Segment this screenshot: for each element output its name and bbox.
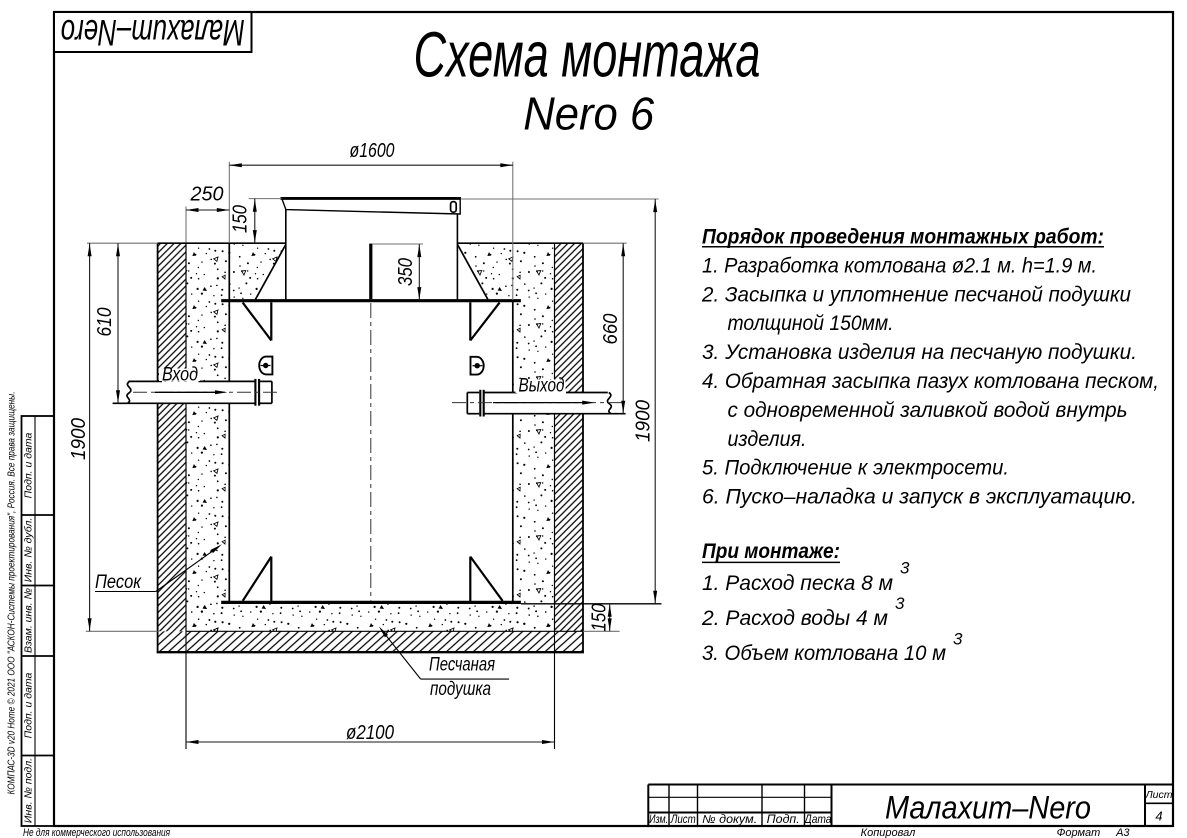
svg-text:6. Пуско–наладка и запуск в эк: 6. Пуско–наладка и запуск в эксплуатацию… <box>702 486 1137 509</box>
svg-text:4. Обратная засыпка пазух котл: 4. Обратная засыпка пазух котлована песк… <box>702 370 1159 393</box>
svg-text:Не для коммерческого использов: Не для коммерческого использования <box>23 827 170 838</box>
svg-text:ø2100: ø2100 <box>346 721 394 744</box>
svg-text:Лист: Лист <box>1144 789 1172 801</box>
svg-text:3: 3 <box>953 630 963 649</box>
svg-text:610: 610 <box>93 307 116 336</box>
svg-text:350: 350 <box>394 258 417 286</box>
svg-text:Схема монтажа: Схема монтажа <box>414 19 761 91</box>
svg-text:660: 660 <box>599 313 622 345</box>
svg-text:3. Установка изделия на песчан: 3. Установка изделия на песчаную подушки… <box>702 341 1137 364</box>
svg-text:3: 3 <box>900 559 910 578</box>
svg-text:подушка: подушка <box>430 678 491 700</box>
svg-text:ø1600: ø1600 <box>350 139 395 162</box>
svg-text:Песчаная: Песчаная <box>429 653 495 675</box>
svg-text:Nero 6: Nero 6 <box>523 88 654 140</box>
svg-text:4: 4 <box>1155 809 1162 824</box>
svg-text:Инв. № дубл.: Инв. № дубл. <box>23 518 35 583</box>
svg-text:2. Расход воды 4 м: 2. Расход воды 4 м <box>701 607 888 630</box>
svg-text:Подп.: Подп. <box>767 814 800 826</box>
svg-text:изделия.: изделия. <box>728 428 807 451</box>
svg-text:Порядок проведения монтажных р: Порядок проведения монтажных работ: <box>702 225 1104 248</box>
svg-text:Малахит–Nero: Малахит–Nero <box>885 790 1091 826</box>
svg-text:1. Разработка котлована ø2.1 м: 1. Разработка котлована ø2.1 м. h=1.9 м. <box>702 255 1097 278</box>
svg-text:Формат: Формат <box>1057 827 1101 838</box>
svg-text:При монтаже:: При монтаже: <box>702 540 840 563</box>
svg-text:Подп. и дата: Подп. и дата <box>23 672 35 738</box>
svg-text:Дата: Дата <box>803 814 832 826</box>
svg-text:с одновременной заливкой водой: с одновременной заливкой водой внутрь <box>728 399 1128 422</box>
svg-text:250: 250 <box>190 183 225 206</box>
svg-text:толщиной 150мм.: толщиной 150мм. <box>728 312 894 335</box>
svg-text:Взам. инв. №: Взам. инв. № <box>23 588 35 653</box>
svg-text:Песок: Песок <box>95 571 142 593</box>
svg-text:3. Объем котлована 10 м: 3. Объем котлована 10 м <box>702 642 946 665</box>
svg-text:Выход: Выход <box>519 375 565 396</box>
svg-text:5. Подключение к электросети.: 5. Подключение к электросети. <box>702 457 1009 480</box>
svg-text:150: 150 <box>588 603 611 631</box>
svg-text:1900: 1900 <box>632 399 655 442</box>
svg-text:Изм.: Изм. <box>649 814 668 826</box>
svg-text:150: 150 <box>229 205 252 233</box>
svg-text:КОМПАС-3D v20 Home © 2021 ООО: КОМПАС-3D v20 Home © 2021 ООО "АСКОН-Сис… <box>7 392 18 795</box>
svg-text:Малахит–Nero: Малахит–Nero <box>61 12 245 53</box>
svg-text:Лист: Лист <box>670 814 696 826</box>
svg-text:1. Расход песка 8 м: 1. Расход песка 8 м <box>702 572 893 595</box>
svg-text:Вход: Вход <box>162 364 198 385</box>
svg-text:Инв. № подл.: Инв. № подл. <box>23 758 35 823</box>
svg-text:2. Засыпка и уплотнение песчан: 2. Засыпка и уплотнение песчаной подушки <box>701 283 1131 306</box>
svg-text:Подп. и дата: Подп. и дата <box>23 432 35 498</box>
svg-text:3: 3 <box>895 594 905 613</box>
svg-text:1900: 1900 <box>67 417 90 460</box>
svg-text:Копировал: Копировал <box>861 827 916 838</box>
svg-text:№ докум.: № докум. <box>702 814 757 826</box>
svg-text:А3: А3 <box>1115 827 1130 838</box>
